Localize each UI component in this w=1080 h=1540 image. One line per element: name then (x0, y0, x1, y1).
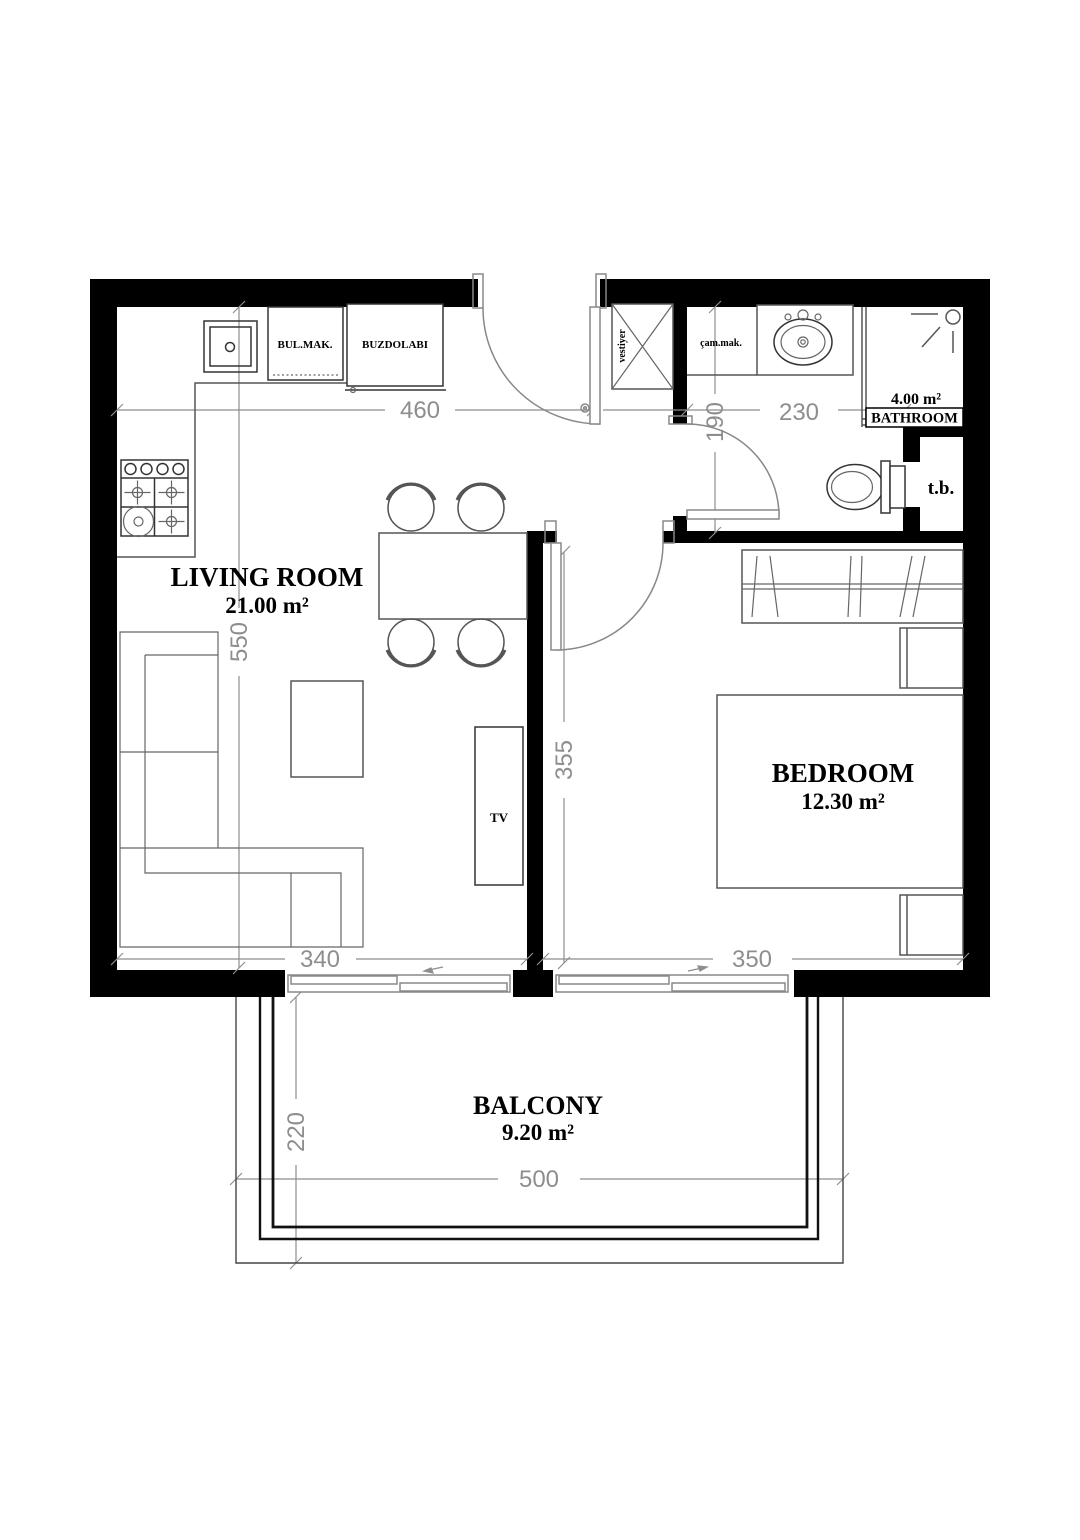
wall-top-right (600, 279, 990, 307)
tv-label: TV (490, 810, 509, 825)
wall-bedroom-top (663, 531, 963, 543)
bedroom-area: 12.30 m² (801, 789, 885, 814)
wall-tb-left-upper (903, 437, 920, 462)
wardrobe-body (742, 550, 963, 623)
bedroom-furniture (717, 550, 963, 955)
wall-bathdoor-corner (673, 516, 687, 543)
bathroom-area: 4.00 m² (891, 391, 941, 408)
kitchen-sink-inner (210, 327, 251, 366)
walls (90, 279, 990, 997)
living-room-furniture: TV (120, 484, 527, 947)
entrance-door-handle-pin (584, 407, 587, 410)
dim-label-550: 550 (226, 622, 253, 662)
bathroom-door-leaf (687, 510, 779, 519)
nightstand-top (900, 628, 963, 688)
balcony-area: 9.20 m² (502, 1120, 574, 1145)
dining-chair (457, 484, 505, 531)
nightstand-body (900, 895, 963, 955)
wall-right (963, 279, 990, 997)
bedroom-door-swing (556, 543, 663, 650)
kitchen: BUL.MAK. BUZDOLABI (117, 304, 446, 557)
sliding-arrow-icon (424, 967, 443, 973)
dining-chair (387, 484, 435, 531)
toilet (827, 461, 905, 513)
living-room-area: 21.00 m² (225, 593, 309, 618)
wall-bottom-right (794, 970, 990, 997)
wall-bedroom-top-left-stub (527, 531, 557, 543)
entrance-door (473, 274, 606, 424)
nightstand-body (900, 628, 963, 688)
dining-chair (387, 619, 435, 666)
dishwasher: BUL.MAK. (268, 307, 343, 380)
wall-bottom-left (90, 970, 285, 997)
refrigerator-label: BUZDOLABI (362, 339, 428, 351)
dim-label-500: 500 (519, 1166, 559, 1193)
stove (121, 460, 188, 537)
tv-unit: TV (475, 727, 523, 885)
toilet-tank-front (881, 461, 890, 513)
dim-label-355: 355 (551, 740, 578, 780)
floor-plan-page: 460 230 190 550 355 340 350 220 500 (0, 0, 1080, 1540)
wall-bottom-pier (513, 970, 553, 997)
tv-unit-body (475, 727, 523, 885)
shower-head-icon (946, 310, 960, 324)
balcony-name: BALCONY (473, 1091, 603, 1120)
bathroom-door (669, 416, 779, 519)
washing-machine: çam.mak. (687, 338, 757, 375)
floor-plan-svg: 460 230 190 550 355 340 350 220 500 (0, 0, 1080, 1540)
kitchen-sink-outer (204, 321, 257, 372)
dim-label-340: 340 (300, 946, 340, 973)
toilet-bowl-inner (832, 472, 873, 503)
wall-divider-living-bedroom (527, 531, 543, 970)
wall-hall-stub (673, 307, 687, 424)
coffee-table (291, 681, 363, 777)
toilet-tank (890, 466, 905, 508)
dining-chair (457, 619, 505, 666)
kitchen-sink-drain (226, 343, 235, 352)
dim-label-460: 460 (400, 397, 440, 424)
technical-box-label: t.b. (928, 478, 954, 499)
wardrobe (742, 550, 963, 623)
refrigerator: BUZDOLABI (345, 304, 446, 393)
bedroom-name: BEDROOM (772, 758, 915, 788)
sofa-seat-edge (145, 655, 341, 947)
dim-label-220: 220 (283, 1112, 310, 1152)
living-room-name: LIVING ROOM (171, 562, 364, 592)
bathroom-door-swing (687, 424, 779, 516)
nightstand-bottom (900, 895, 963, 955)
entrance-door-leaf (590, 307, 600, 424)
dining-table (379, 533, 527, 619)
dim-label-350: 350 (732, 946, 772, 973)
dining-set (379, 484, 527, 666)
sliding-arrow-icon (688, 966, 707, 971)
entrance-door-swing (483, 308, 600, 424)
wall-top-left (90, 279, 478, 307)
wall-tb-left-lower (903, 507, 920, 531)
coat-closet: vestiyer (612, 304, 673, 389)
bedroom-door-leaf (551, 543, 561, 650)
kitchen-sink (204, 321, 257, 372)
washing-machine-label: çam.mak. (700, 338, 742, 349)
dim-label-230: 230 (779, 399, 819, 426)
wall-left (90, 279, 117, 997)
sofa (120, 632, 363, 947)
dishwasher-label: BUL.MAK. (278, 339, 333, 351)
entrance-door-handle (581, 404, 589, 412)
coat-closet-label: vestiyer (617, 329, 628, 363)
bathroom-sink (757, 305, 853, 375)
dim-label-190: 190 (702, 402, 729, 442)
sofa-outline (120, 632, 363, 947)
bathroom-name: BATHROOM (871, 411, 958, 427)
